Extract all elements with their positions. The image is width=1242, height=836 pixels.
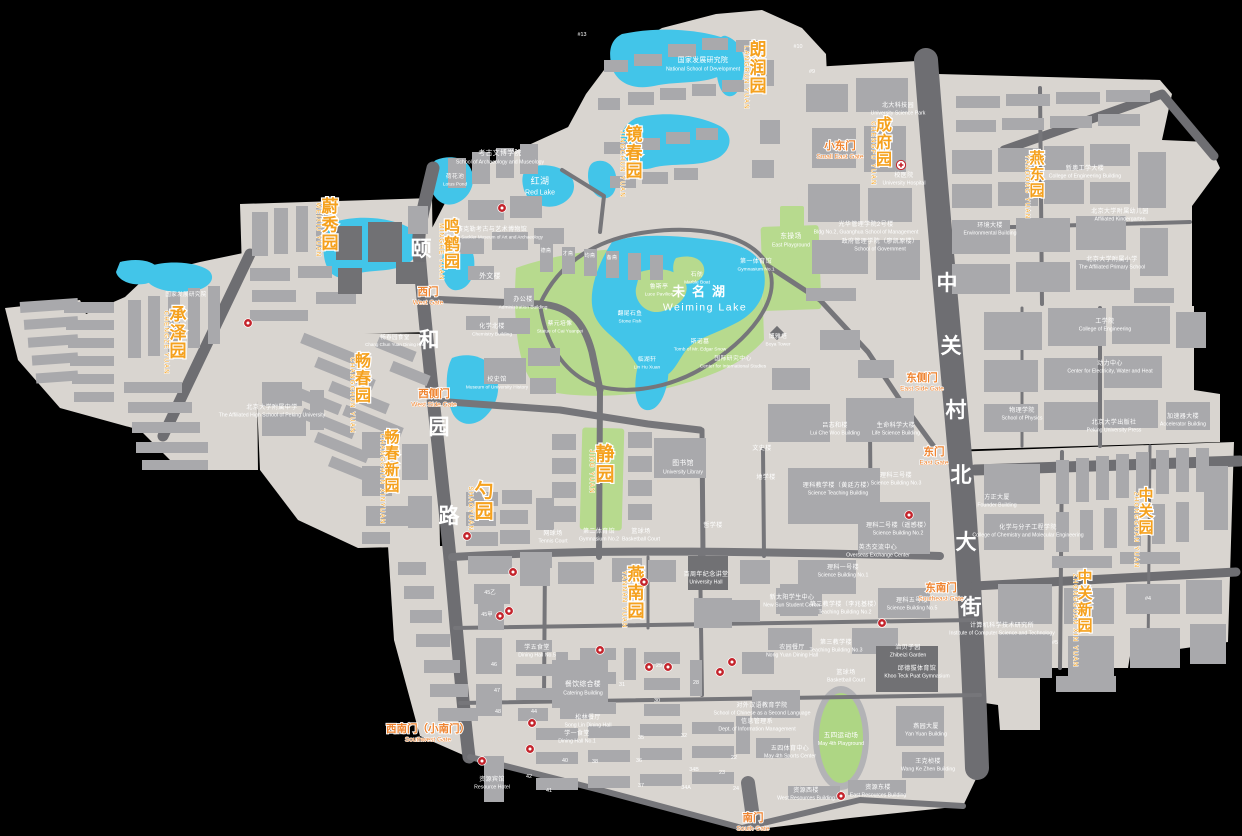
building (136, 442, 208, 453)
street-name-char: 中 (937, 272, 958, 295)
map-label-en: College of Engineering (1079, 327, 1132, 333)
building (1076, 458, 1089, 502)
garden-name-pinyin: ZHONGGUAN XIN YUAN (1071, 574, 1077, 668)
map-label: 国家发展研究院 (165, 290, 206, 298)
map-label-cn: 理科三号楼 (880, 471, 912, 479)
map-label-cn: 五四体育中心 (771, 744, 809, 752)
building-number: #10 (794, 44, 803, 50)
building (1044, 180, 1084, 204)
map-label-cn: 东操场 (780, 231, 802, 240)
building (998, 584, 1052, 624)
map-label: 五四运动场May 4th Playground (818, 730, 864, 747)
building (644, 704, 680, 716)
poi-marker-dot (481, 760, 484, 763)
garden-name-char: 朗 (750, 39, 767, 59)
map-label-en: Dept. of Information Management (718, 727, 796, 733)
building (604, 60, 628, 72)
garden-name-char: 畅 (384, 428, 399, 446)
garden-name-char: 园 (170, 342, 187, 361)
poi-marker[interactable] (526, 745, 535, 754)
building (674, 168, 698, 180)
building (732, 600, 760, 622)
garden-name-char: 秀 (321, 215, 339, 234)
map-label-cn: 才斋 (563, 250, 574, 257)
building (588, 776, 630, 788)
building-number: 46 (491, 662, 497, 668)
campus-map: 国家发展研究院National School of Development考古文… (0, 0, 1242, 836)
map-label-cn: 王克桢楼 (915, 757, 941, 765)
garden-label[interactable]: 蔚秀园WEIXIU YUAN (315, 197, 339, 258)
map-label-cn: 信息管理系 (741, 717, 773, 725)
map-label-cn: 国家发展研究院 (165, 290, 206, 298)
garden-name-char: 静 (595, 442, 614, 465)
building (1050, 116, 1092, 128)
map-label-en: Marble Boat (684, 279, 711, 285)
building (1104, 508, 1117, 548)
building (806, 84, 848, 112)
poi-marker[interactable] (528, 719, 537, 728)
garden-name-char: 蔚 (322, 197, 339, 216)
map-label: 第二体育馆Gymnasium No.2 (579, 527, 619, 543)
poi-marker-dot (466, 535, 469, 538)
gate-name-cn: 东门 (924, 445, 945, 458)
map-label-cn: 资源西楼 (793, 786, 819, 794)
building (366, 506, 408, 526)
map-label-cn: 新太阳学生中心 (770, 593, 815, 601)
building (536, 778, 578, 790)
map-label: 北京大学出版社Peking University Press (1087, 418, 1142, 434)
poi-marker[interactable] (505, 607, 514, 616)
building (772, 368, 810, 390)
building (274, 208, 288, 254)
poi-marker[interactable] (837, 792, 846, 801)
map-label-cn: 赛克勒考古与艺术博物馆 (457, 225, 527, 233)
building (208, 286, 220, 344)
map-label-en: The Affiliated Primary School (1079, 265, 1146, 271)
building (1052, 556, 1112, 568)
building (598, 98, 620, 110)
poi-marker-dot (512, 571, 515, 574)
map-label: 资源宾馆Resource Hotel (474, 775, 510, 791)
building (998, 634, 1052, 678)
garden-label[interactable]: 燕南园YANNAN YUAN (621, 564, 645, 629)
map-label-cn: 环境大楼 (977, 221, 1003, 229)
building-number: 44 (531, 709, 537, 715)
building (696, 128, 718, 140)
map-label-cn: 临湖轩 (638, 355, 657, 363)
poi-marker-dot (648, 666, 651, 669)
map-label-cn: 斯诺墓 (691, 337, 710, 345)
building (128, 402, 192, 413)
poi-marker[interactable] (496, 612, 505, 621)
map-label-en: Chemistry Building (472, 332, 512, 338)
garden-name-char: 关 (1138, 502, 1153, 520)
garden-name-char: 府 (876, 132, 892, 151)
map-label-en: Weiming Lake (663, 302, 747, 314)
map-label-en: Basketball Court (622, 537, 661, 543)
map-label-en: The Affiliated High School of Peking Uni… (219, 413, 326, 419)
garden-name-char: 园 (322, 234, 339, 253)
map-label-en: Basketball Court (827, 678, 866, 684)
map-label-cn: 餐饮综合楼 (565, 679, 601, 688)
building (808, 184, 860, 222)
poi-marker[interactable] (645, 663, 654, 672)
building (956, 96, 1000, 108)
map-label-cn: 北京大学附属幼儿园 (1091, 207, 1149, 215)
garden-name-pinyin: JING YUAN (588, 450, 594, 495)
poi-marker[interactable] (716, 668, 725, 677)
map-label-en: Resource Hotel (474, 785, 510, 791)
building (1130, 628, 1180, 668)
map-label-cn: 图书馆 (672, 458, 694, 467)
building (1016, 218, 1070, 252)
building (1176, 502, 1189, 542)
garden-name-char: 春 (626, 142, 643, 162)
building (536, 498, 554, 530)
map-label-cn: 考古文博学院 (478, 148, 521, 157)
map-label-en: Institute of Computer Science and Techno… (949, 631, 1055, 637)
garden-name-char: 园 (384, 478, 399, 495)
building (640, 774, 682, 786)
map-label-cn: 五四运动场 (824, 730, 859, 739)
building-number: 45甲 (481, 611, 492, 618)
map-label-en: Affiliated Kindergarten (1095, 217, 1146, 223)
map-label-en: Tennis Court (538, 539, 568, 545)
map-label-en: Catering Building (563, 690, 603, 696)
map-label-en: University Science Park (871, 111, 926, 117)
garden-name-pinyin: SHAOYUAN (467, 487, 473, 532)
poi-marker-dot (529, 748, 532, 751)
garden-name-char: 鸣 (444, 217, 460, 236)
building (536, 752, 578, 764)
building (666, 132, 690, 144)
garden-name-char: 畅 (355, 351, 371, 370)
map-label-cn: 政府管理学院（廖凯原楼） (842, 237, 919, 245)
building (1056, 92, 1100, 104)
map-label-cn: 资源宾馆 (479, 775, 505, 783)
poi-marker[interactable] (463, 532, 472, 541)
map-label-en: Wang Ke Zhen Building (901, 767, 955, 773)
building (552, 458, 576, 474)
building (640, 724, 682, 736)
street-name-char: 和 (419, 329, 440, 352)
building (902, 752, 944, 778)
building (628, 92, 654, 105)
building (702, 38, 728, 50)
building (1204, 466, 1228, 530)
poi-marker[interactable] (478, 757, 487, 766)
map-label-cn: 方正大厦 (984, 493, 1010, 501)
poi-marker-dot (599, 649, 602, 652)
map-label-cn: 农园餐厅 (779, 643, 805, 651)
poi-marker-dot (499, 615, 502, 618)
building (1152, 504, 1165, 544)
map-label-cn: 理科教学楼（黄廷方楼） (803, 481, 873, 489)
building (1090, 182, 1130, 204)
map-label-cn: 文史楼 (752, 444, 771, 452)
building (528, 348, 560, 366)
building (438, 708, 478, 721)
building (500, 530, 530, 544)
building (520, 566, 550, 586)
building-number: #9 (809, 69, 815, 75)
building (500, 510, 528, 524)
street-name-char: 村 (946, 398, 967, 422)
map-label-cn: 邱德拔体育馆 (898, 664, 936, 672)
building (250, 268, 290, 281)
map-label: 文史楼 (752, 444, 771, 452)
map-label-cn: 第三教学楼 (820, 638, 852, 646)
poi-marker[interactable] (640, 578, 649, 587)
map-label-cn: 动力中心 (1097, 359, 1123, 367)
building-number: 32 (681, 733, 687, 739)
building (1098, 114, 1140, 126)
map-label-en: Lotus Pond (443, 181, 468, 187)
garden-name-pinyin: CHENGZE YUAN (163, 311, 169, 375)
map-label-cn: 博雅塔 (769, 332, 788, 340)
map-label: 五四体育中心May 4th Sports Center (764, 744, 816, 760)
map-label-en: Founder Building (977, 503, 1016, 509)
building (66, 320, 114, 330)
map-label-en: New Sun Student Center (763, 603, 821, 609)
map-label-cn: 北京大学出版社 (1092, 418, 1137, 426)
map-label-cn: 北京大学附属小学 (1086, 255, 1137, 263)
garden-name-char: 园 (626, 162, 643, 181)
map-label: 荷花池Lotus Pond (443, 172, 468, 187)
building-number: 23 (719, 770, 725, 776)
map-label: 新太阳学生中心New Sun Student Center (763, 593, 821, 609)
garden-name-char: 园 (750, 77, 767, 96)
poi-marker-dot (840, 795, 843, 798)
map-label-cn: 加速器大楼 (1167, 412, 1199, 420)
building (984, 312, 1042, 350)
building (1120, 552, 1180, 564)
map-label-en: University Library (663, 469, 703, 475)
map-label-en: School of Archaeology and Museology (456, 159, 545, 165)
building (1002, 118, 1044, 130)
building-number: 41 (546, 788, 552, 794)
building (1116, 454, 1129, 498)
gate-name-cn: 小东门 (823, 139, 856, 152)
map-label-cn: 理科一号楼 (827, 563, 859, 571)
poi-marker[interactable] (728, 658, 737, 667)
map-label-cn: 学一食堂 (564, 729, 590, 737)
building (124, 382, 182, 393)
poi-marker-dot (881, 622, 884, 625)
building (1176, 448, 1189, 492)
garden-name-char: 园 (1077, 618, 1092, 635)
map-label-cn: 化学北楼 (479, 322, 505, 330)
map-label-en: May 4th Sports Center (764, 754, 816, 760)
street-name-char: 大 (956, 531, 977, 554)
building (516, 664, 552, 676)
map-label-cn: 治贝子园 (895, 643, 921, 651)
building (1186, 580, 1222, 614)
building (806, 288, 856, 301)
map-label-cn: 物理学院 (1009, 406, 1035, 414)
poi-marker[interactable] (498, 204, 507, 213)
map-label: 百周年纪念讲堂University Hall (684, 570, 729, 586)
building (624, 648, 636, 680)
building-number: 42 (526, 774, 532, 780)
garden-name-pinyin: CHENGFU YUAN (870, 121, 876, 186)
garden-name-char: 中 (1077, 568, 1092, 586)
gate-name-cn: 东侧门 (906, 371, 938, 384)
map-label-en: Khoo Teck Puat Gymnasium (884, 674, 949, 680)
map-label: 备斋 (607, 254, 618, 261)
poi-marker-dot (719, 671, 722, 674)
street-name-char: 北 (951, 464, 972, 487)
building (408, 496, 432, 528)
garden-name-pinyin: MINGHE YUAN (438, 223, 444, 281)
building (424, 660, 460, 673)
garden-name-pinyin: CHANGCHUN YUAN (349, 357, 355, 434)
building-number: 34B (689, 767, 699, 773)
map-label-cn: 光华管理学院2号楼 (839, 220, 894, 228)
map-label-en: Lin Hu Xuan (634, 364, 661, 370)
gate-name-en: Southeast Gate (918, 596, 964, 603)
map-label-en: East Resources Building (850, 793, 907, 799)
building (476, 638, 502, 674)
building (1138, 152, 1166, 208)
map-label-en: National School of Development (666, 66, 741, 72)
building-number: 29 (656, 663, 662, 669)
poi-marker[interactable] (905, 511, 914, 520)
map-label-cn: 翻尾石鱼 (618, 309, 643, 317)
building (148, 296, 160, 356)
map-label-cn: 第一体育馆 (740, 257, 772, 265)
poi-marker[interactable] (509, 568, 518, 577)
garden-name-char: 园 (1138, 519, 1153, 536)
garden-name-char: 园 (595, 464, 614, 486)
building (516, 688, 552, 700)
gate-name-cn: 东南门 (925, 581, 957, 594)
map-label: 餐饮综合楼Catering Building (563, 679, 603, 696)
map-label-cn: 英杰交流中心 (859, 543, 897, 551)
map-label: 翻尾石鱼Stone Fish (618, 309, 643, 324)
building (660, 88, 686, 100)
map-label-en: Science Building No.1 (818, 573, 869, 579)
building (1176, 312, 1206, 348)
map-label-en: Bldg No.2, Guanghua School of Management (814, 230, 919, 236)
poi-marker-dot (531, 722, 534, 725)
map-label-en: School of Government (854, 247, 906, 253)
garden-name-pinyin: ZHONGGUAN YUAN (1132, 492, 1138, 569)
map-label-en: University Hospital (883, 181, 926, 187)
map-label-cn: 备斋 (607, 254, 618, 261)
building (740, 560, 770, 584)
building (310, 390, 324, 430)
building (628, 504, 652, 520)
map-label-cn: 吕志和楼 (822, 421, 848, 429)
map-label-cn: 国家发展研究院 (678, 55, 728, 64)
gate-label[interactable]: 东侧门East Side Gate (900, 371, 944, 393)
map-label-cn: 百周年纪念讲堂 (684, 570, 729, 578)
building (952, 150, 992, 174)
building (820, 330, 860, 350)
poi-marker[interactable] (244, 319, 253, 328)
building (628, 480, 652, 496)
poi-marker[interactable] (878, 619, 887, 628)
garden-name-char: 关 (1077, 584, 1092, 602)
gate-label[interactable]: 东门East Gate (920, 445, 949, 467)
building (502, 490, 532, 504)
poi-marker-dot (501, 207, 504, 210)
garden-name-pinyin: LANGRUN YUAN (743, 46, 749, 110)
map-label-cn: 未名湖 (671, 284, 732, 299)
poi-marker[interactable] (664, 663, 673, 672)
building (1156, 450, 1169, 494)
hospital-marker[interactable] (896, 160, 905, 169)
map-label-cn: 校医院 (894, 171, 913, 179)
gate-name-cn: 南门 (743, 811, 764, 824)
garden-name-pinyin: JINGCHUN YUAN (619, 131, 625, 198)
garden-name-char: 春 (354, 368, 372, 387)
garden-name-char: 承 (170, 305, 187, 324)
garden-name-char: 燕 (1029, 149, 1044, 167)
map-label-cn: 荷花池 (446, 172, 465, 180)
building (648, 560, 676, 582)
map-label-en: Boya Tower (766, 341, 791, 347)
map-label-cn: 第二体育馆 (583, 527, 615, 535)
poi-marker-dot (908, 514, 911, 517)
poi-marker-dot (508, 610, 511, 613)
map-label-en: East Playground (772, 242, 810, 248)
map-label-en: Science Building No.5 (887, 606, 938, 612)
building (812, 240, 868, 274)
map-label-cn: 生命科学大楼 (877, 421, 915, 429)
map-label-cn: 均斋 (585, 252, 596, 259)
building (952, 184, 992, 208)
building (408, 206, 428, 234)
building (692, 746, 734, 758)
map-label-en: Life Science Building (872, 431, 920, 437)
map-label-cn: 北京大学附属中学 (246, 403, 297, 411)
map-label-en: Teaching Building No.2 (818, 610, 871, 616)
map-label-en: Center for Electricity, Water and Heat (1067, 369, 1153, 375)
map-label: 均斋 (585, 252, 596, 259)
garden-name-char: 勺 (474, 479, 493, 502)
garden-name-char: 园 (628, 602, 645, 621)
garden-name-char: 成 (876, 115, 892, 134)
street-name-char: 园 (429, 416, 450, 439)
poi-marker-dot (247, 322, 250, 325)
poi-marker[interactable] (596, 646, 605, 655)
map-label-en: Luce Pavilion (645, 291, 674, 297)
building (1134, 288, 1174, 303)
building (368, 222, 402, 262)
map-label-en: School of Chinese as a Second Language (714, 711, 811, 717)
map-label: 第一体育馆Gymnasium No.1 (737, 257, 774, 273)
building-number: 24 (733, 786, 739, 792)
map-label-cn: 北大科技园 (882, 101, 914, 109)
gate-name-cn: 西门 (418, 285, 439, 298)
building (668, 44, 696, 57)
map-label-en: Museum of University History (466, 385, 529, 391)
building (1006, 94, 1050, 106)
map-label-cn: 校史馆 (487, 375, 506, 383)
building-number: #5 (1052, 640, 1058, 646)
gate-name-cn: 西侧门 (418, 387, 450, 400)
building (530, 378, 556, 394)
building (760, 120, 780, 144)
garden-name-char: 润 (750, 57, 767, 77)
poi-marker-dot (731, 661, 734, 664)
building (298, 266, 332, 278)
map-label-cn: 理科二号楼（遥感楼） (866, 521, 930, 529)
building-number: 40 (562, 758, 568, 764)
building (640, 748, 682, 760)
